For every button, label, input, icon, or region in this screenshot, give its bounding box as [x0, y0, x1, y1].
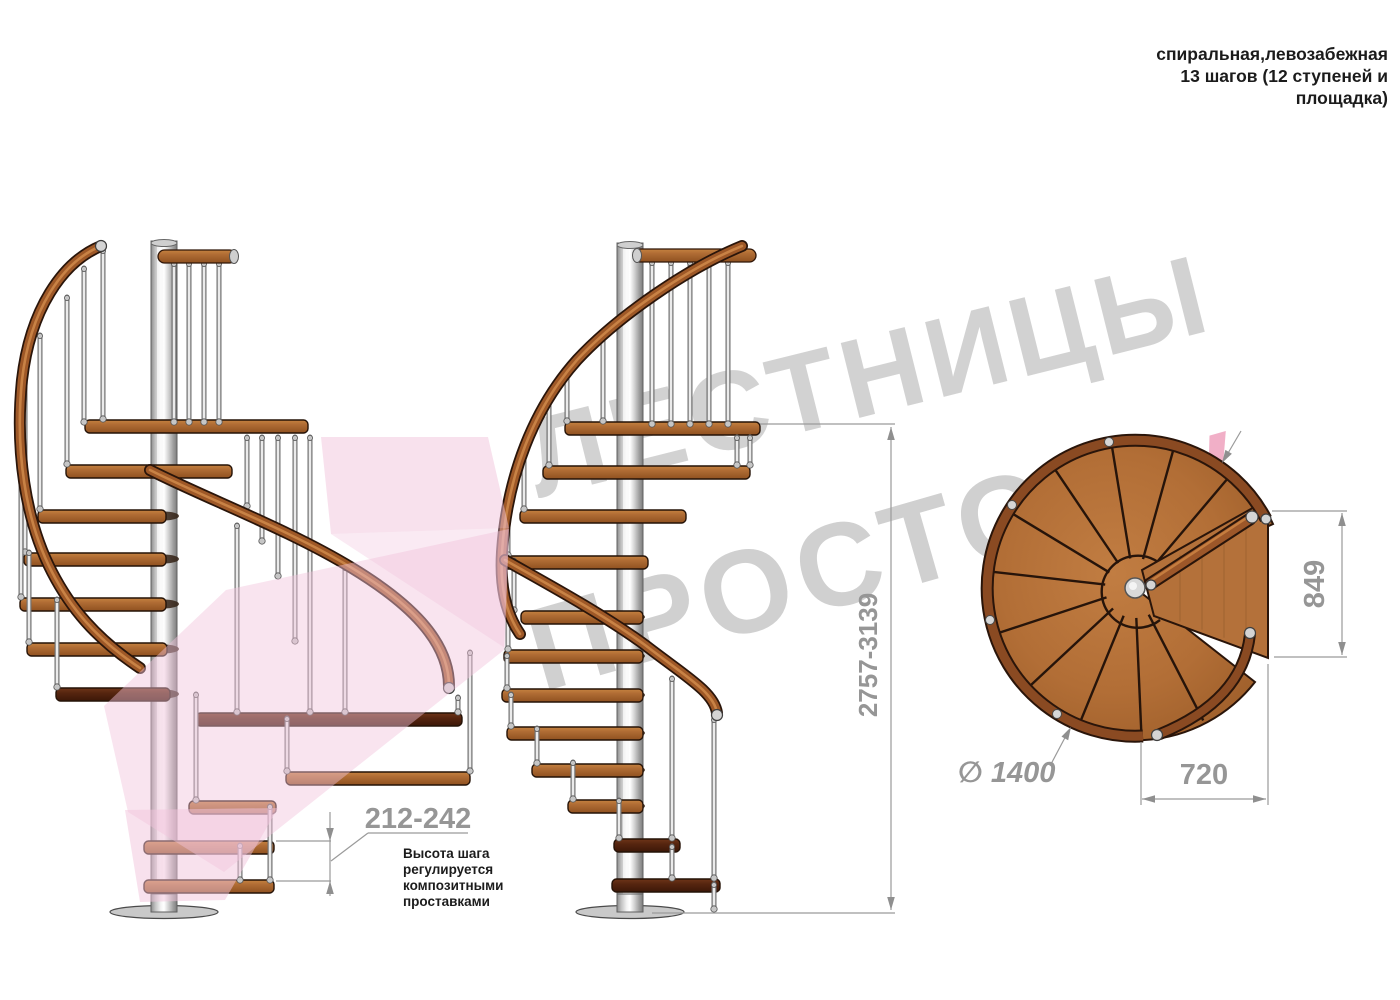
baluster-top-fitting-icon — [570, 760, 575, 765]
dimension-arrow-icon — [326, 828, 334, 841]
baluster-top-fitting-icon — [234, 523, 239, 528]
baluster-foot-fitting-icon — [747, 462, 753, 468]
baluster-top-fitting-icon — [711, 882, 716, 887]
baluster-top-fitting-icon — [259, 435, 264, 440]
stair-step — [520, 510, 686, 523]
stair-step — [85, 420, 308, 433]
metal-cap-icon — [1246, 511, 1258, 523]
baluster-top-fitting-icon — [26, 550, 31, 555]
baluster-foot-fitting-icon — [54, 684, 60, 690]
baluster-foot-fitting-icon — [616, 835, 622, 841]
fitting-icon — [216, 419, 222, 425]
baluster-foot-fitting-icon — [64, 461, 70, 467]
baluster-foot-fitting-icon — [734, 462, 740, 468]
baluster-foot-fitting-icon — [100, 416, 106, 422]
stair-step — [543, 466, 750, 479]
rim-rivet-icon — [1008, 501, 1017, 510]
rim-rivet-icon — [1053, 710, 1062, 719]
baluster-top-fitting-icon — [508, 692, 513, 697]
note-line-2: регулируется — [403, 862, 493, 877]
spiral-staircase-drawing: ЛЕСТНИЦЫ ПРОСТО.ру 212-242 Высота шага р… — [0, 0, 1400, 1000]
metal-cap-icon — [1245, 628, 1256, 639]
baluster-top-fitting-icon — [534, 726, 539, 731]
baluster-foot-fitting-icon — [504, 685, 510, 691]
center-hub-shine — [1129, 582, 1137, 590]
staircase-top-view — [983, 436, 1273, 740]
note-line-4: проставками — [403, 894, 490, 909]
fitting-icon — [201, 419, 207, 425]
baluster-foot-fitting-icon — [467, 768, 473, 774]
baluster-top-fitting-icon — [37, 333, 42, 338]
pole-foot — [617, 894, 643, 912]
fitting-icon — [186, 419, 192, 425]
dimension-arrow-icon — [326, 881, 334, 894]
stair-step — [521, 611, 643, 624]
baluster-top-fitting-icon — [275, 435, 280, 440]
baluster-foot-fitting-icon — [669, 875, 675, 881]
baluster-foot-fitting-icon — [600, 418, 606, 424]
baluster-foot-fitting-icon — [564, 418, 570, 424]
baluster-top-fitting-icon — [734, 435, 739, 440]
metal-cap-icon — [96, 241, 107, 252]
stair-step — [532, 764, 643, 777]
baluster-top-fitting-icon — [244, 435, 249, 440]
note-title-line-3: площадка) — [1296, 88, 1388, 108]
baluster-foot-fitting-icon — [711, 875, 717, 881]
metal-cap-icon — [1146, 580, 1156, 590]
stair-step — [507, 727, 643, 740]
baluster-top-fitting-icon — [455, 695, 460, 700]
pole-shine — [623, 243, 628, 916]
fitting-icon — [171, 419, 177, 425]
note-title-line-2: 13 шагов (12 ступеней и — [1180, 66, 1388, 86]
baluster-foot-fitting-icon — [37, 506, 43, 512]
pole-top-cap-icon — [617, 242, 643, 249]
rail-end-cap-icon — [633, 249, 642, 263]
baluster-foot-fitting-icon — [546, 462, 552, 468]
baluster-top-fitting-icon — [81, 266, 86, 271]
fitting-icon — [687, 421, 693, 427]
rail-end-cap-icon — [230, 250, 239, 264]
baluster-foot-fitting-icon — [267, 877, 273, 883]
baluster-foot-fitting-icon — [275, 573, 281, 579]
baluster-top-fitting-icon — [669, 676, 674, 681]
stair-step — [502, 689, 643, 702]
dim-platform-width: 720 — [1180, 759, 1228, 791]
baluster-foot-fitting-icon — [508, 723, 514, 729]
stair-step — [568, 800, 643, 813]
drawing-note: спиральная,левозабежная 13 шагов (12 сту… — [1156, 44, 1388, 108]
rim-rivet-icon — [1105, 438, 1114, 447]
baluster-top-fitting-icon — [64, 295, 69, 300]
baluster-top-fitting-icon — [292, 435, 297, 440]
baluster-top-fitting-icon — [54, 597, 59, 602]
baluster-top-fitting-icon — [747, 435, 752, 440]
baluster-foot-fitting-icon — [505, 646, 511, 652]
dimension-arrow-icon — [1338, 642, 1346, 655]
baluster-foot-fitting-icon — [570, 796, 576, 802]
dimension-arrow-icon — [1142, 795, 1155, 803]
stair-step — [504, 650, 643, 663]
note-line-1: Высота шага — [403, 846, 490, 861]
baluster-top-fitting-icon — [616, 798, 621, 803]
dim-total-height: 2757-3139 — [853, 593, 883, 717]
dimension-line — [331, 833, 368, 861]
dimension-arrow-icon — [887, 897, 895, 910]
rim-rivet-icon — [986, 616, 995, 625]
fitting-icon — [706, 421, 712, 427]
platform-top-rail — [158, 250, 236, 263]
baluster-foot-fitting-icon — [81, 419, 87, 425]
baluster-top-fitting-icon — [669, 844, 674, 849]
metal-cap-icon — [712, 710, 723, 721]
fitting-icon — [668, 421, 674, 427]
fitting-icon — [649, 421, 655, 427]
baluster-foot-fitting-icon — [26, 639, 32, 645]
baluster-top-fitting-icon — [307, 435, 312, 440]
baluster-foot-fitting-icon — [259, 538, 265, 544]
technical-drawing-page: ЛЕСТНИЦЫ ПРОСТО.ру 212-242 Высота шага р… — [0, 0, 1400, 1000]
metal-cap-icon — [1152, 730, 1163, 741]
dim-platform-depth: 849 — [1299, 560, 1331, 608]
note-line-3: композитными — [403, 878, 503, 893]
stair-step — [38, 510, 166, 523]
pole-top-cap-icon — [151, 240, 177, 247]
dimension-arrow-icon — [1253, 795, 1266, 803]
dim-step-height: 212-242 — [365, 803, 471, 835]
baluster-foot-fitting-icon — [455, 709, 461, 715]
stair-step — [20, 598, 166, 611]
dimension-arrow-icon — [1338, 513, 1346, 526]
stair-step — [612, 879, 720, 892]
dimension-arrow-icon — [1061, 727, 1071, 740]
baluster-foot-fitting-icon — [534, 760, 540, 766]
metal-cap-icon — [1261, 514, 1271, 524]
dim-diameter: ∅ 1400 — [958, 757, 1055, 789]
fitting-icon — [725, 421, 731, 427]
baluster-foot-fitting-icon — [711, 906, 717, 912]
note-title-line-1: спиральная,левозабежная — [1156, 44, 1388, 64]
baluster-top-fitting-icon — [504, 653, 509, 658]
baluster-foot-fitting-icon — [18, 594, 24, 600]
baluster-foot-fitting-icon — [521, 506, 527, 512]
stair-step — [27, 643, 167, 656]
baluster-foot-fitting-icon — [669, 835, 675, 841]
